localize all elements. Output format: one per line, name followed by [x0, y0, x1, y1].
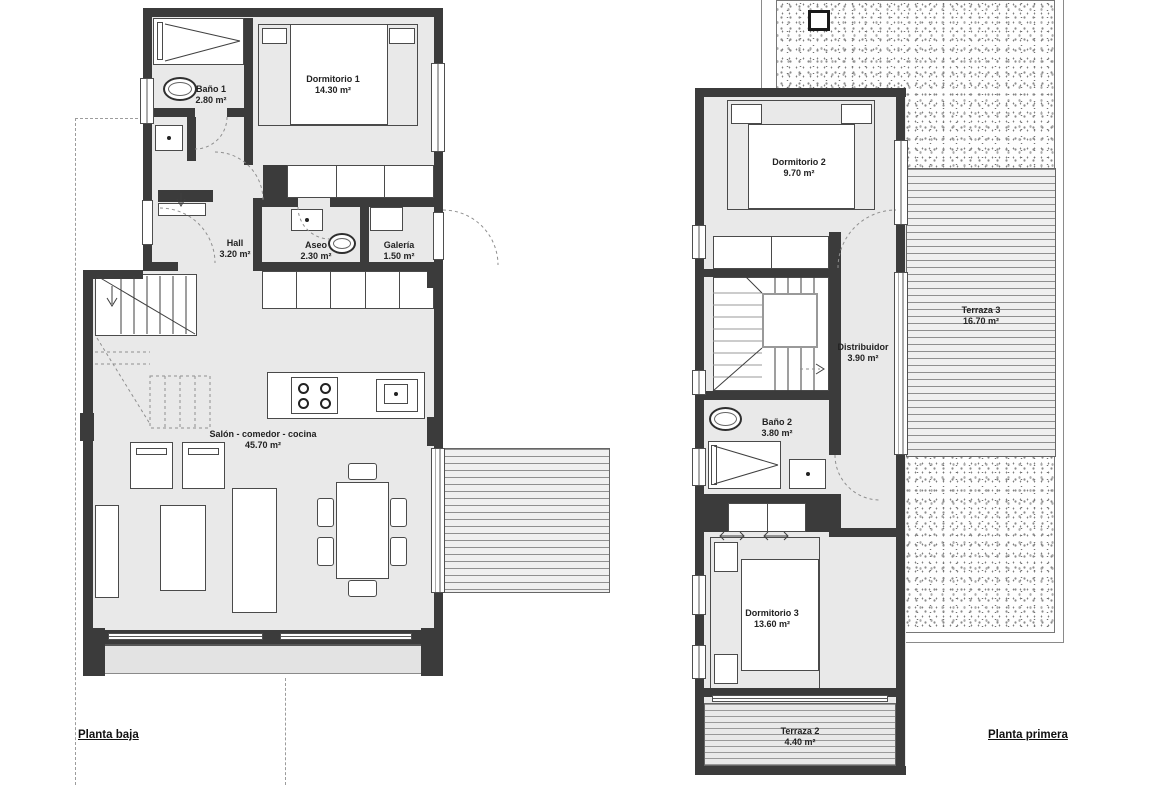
- room-label-terraza-2: Terraza 24.40 m²: [781, 726, 820, 749]
- room-label-hall: Hall3.20 m²: [219, 238, 250, 261]
- washer-symbol: [155, 125, 183, 151]
- i: [168, 82, 192, 96]
- chimney-marker: [808, 10, 830, 31]
- wall-segment: [704, 503, 728, 532]
- window: [894, 140, 908, 225]
- i: [385, 166, 433, 197]
- span: Distribuidor: [838, 342, 889, 353]
- span: 14.30 m²: [306, 85, 360, 96]
- wall-segment: [330, 198, 434, 207]
- wall-segment: [695, 615, 704, 645]
- span: 9.70 m²: [772, 168, 826, 179]
- span: Dormitorio 3: [745, 608, 799, 619]
- plan-title-ground: Planta baja: [78, 729, 139, 741]
- sliding-door: [280, 633, 412, 640]
- wall-segment: [896, 455, 905, 775]
- wall-segment: [434, 593, 443, 633]
- wall-segment: [695, 766, 906, 775]
- wall-segment: [427, 417, 443, 446]
- window: [692, 645, 706, 679]
- i: [714, 412, 737, 426]
- wall-segment: [434, 152, 443, 212]
- wall-segment: [896, 97, 905, 140]
- wall-segment: [896, 225, 905, 272]
- wall-segment: [704, 269, 841, 277]
- room-label-dormitorio-3: Dormitorio 313.60 m²: [745, 608, 799, 631]
- chair-symbol: [317, 537, 334, 566]
- wall-segment: [143, 8, 152, 78]
- span: Galería: [383, 240, 414, 251]
- dining-table: [336, 482, 389, 579]
- chair-symbol: [348, 463, 377, 480]
- gallery-door-opening: [433, 212, 444, 260]
- wall-segment: [421, 628, 443, 676]
- bed-pillow: [841, 104, 872, 124]
- burner: [320, 398, 331, 409]
- window: [431, 63, 445, 152]
- stove-symbol: [291, 377, 338, 414]
- span: Salón - comedor - cocina: [209, 429, 316, 440]
- i: [331, 272, 365, 308]
- plot-outline: [761, 0, 762, 88]
- room-label-dormitorio-2: Dormitorio 29.70 m²: [772, 157, 826, 180]
- kitchen-cabinets: [262, 271, 434, 309]
- closet-rod: [157, 22, 163, 60]
- site-boundary-line: [75, 118, 76, 785]
- window: [692, 225, 706, 259]
- wall-segment: [80, 413, 94, 441]
- window: [692, 370, 706, 395]
- wall-segment: [143, 8, 443, 17]
- entry-door-opening: [142, 200, 153, 245]
- wall-segment: [253, 198, 262, 270]
- span: Dormitorio 1: [306, 74, 360, 85]
- washbasin-symbol: [291, 209, 323, 231]
- wardrobe-symbol: [713, 236, 829, 269]
- wall-segment: [360, 207, 369, 270]
- span: 3.20 m²: [219, 249, 250, 260]
- plot-outline: [906, 642, 1064, 643]
- sofa-symbol: [95, 505, 119, 598]
- window: [140, 78, 154, 124]
- chair-symbol: [317, 498, 334, 527]
- washbasin-symbol: [789, 459, 826, 489]
- floor-plan-sheet: Baño 12.80 m² Dormitorio 114.30 m² Hall3…: [0, 0, 1170, 785]
- room-label-dormitorio-1: Dormitorio 114.30 m²: [306, 74, 360, 97]
- wall-segment: [244, 18, 253, 165]
- room-label-aseo: Aseo2.30 m²: [300, 240, 331, 263]
- span: 2.30 m²: [300, 251, 331, 262]
- burner: [320, 383, 331, 394]
- span: Aseo: [300, 240, 331, 251]
- span: 4.40 m²: [781, 737, 820, 748]
- span: 1.50 m²: [383, 251, 414, 262]
- bed-pillow: [731, 104, 762, 124]
- entry-wall-stub: [158, 190, 213, 202]
- burner: [298, 398, 309, 409]
- shower-rod: [711, 445, 717, 485]
- sliding-door: [431, 448, 445, 593]
- span: Baño 2: [761, 417, 792, 428]
- terrace-deck: [443, 448, 610, 593]
- i: [288, 166, 337, 197]
- span: Terraza 2: [781, 726, 820, 737]
- wall-segment: [253, 262, 434, 271]
- room-label-bano-2: Baño 23.80 m²: [761, 417, 792, 440]
- toilet-symbol: [328, 233, 356, 254]
- span: 16.70 m²: [962, 316, 1001, 327]
- wall-segment: [83, 628, 105, 676]
- window: [692, 575, 706, 615]
- wall-segment: [434, 8, 443, 63]
- furniture: [136, 448, 167, 455]
- sliding-door: [108, 633, 263, 640]
- span: 13.60 m²: [745, 619, 799, 630]
- wall-segment: [143, 124, 152, 200]
- room-label-bano-1: Baño 12.80 m²: [195, 84, 226, 107]
- wall-segment: [695, 97, 704, 225]
- entry-step: [158, 203, 206, 216]
- room-label-galeria: Galería1.50 m²: [383, 240, 414, 263]
- bed-pillow: [714, 654, 738, 684]
- i: [337, 166, 386, 197]
- sofa-symbol: [232, 488, 277, 613]
- span: Baño 1: [195, 84, 226, 95]
- toilet-symbol: [709, 407, 742, 431]
- span: 45.70 m²: [209, 440, 316, 451]
- site-boundary-line: [75, 118, 143, 119]
- span: 3.80 m²: [761, 428, 792, 439]
- site-boundary-line: [285, 678, 286, 785]
- span: 2.80 m²: [195, 95, 226, 106]
- shower-symbol: [708, 441, 781, 489]
- sliding-wardrobe: [728, 503, 806, 532]
- wall-segment: [695, 259, 704, 370]
- burner: [298, 383, 309, 394]
- wall-segment: [227, 108, 244, 117]
- wall-segment: [704, 494, 830, 503]
- wall-segment: [695, 395, 704, 448]
- window: [692, 448, 706, 486]
- span: Dormitorio 2: [772, 157, 826, 168]
- chair-symbol: [390, 537, 407, 566]
- span: Terraza 3: [962, 305, 1001, 316]
- wall-segment: [695, 679, 704, 775]
- wall-segment: [83, 270, 93, 642]
- wall-segment: [806, 503, 831, 532]
- bed-pillow: [389, 28, 415, 44]
- wall-segment: [829, 528, 896, 537]
- porch-strip: [95, 644, 425, 674]
- i: [333, 238, 351, 249]
- wall-segment: [704, 391, 841, 400]
- door-swing-arc: [443, 210, 498, 265]
- chair-symbol: [390, 498, 407, 527]
- i: [729, 504, 768, 531]
- room-label-salon: Salón - comedor - cocina45.70 m²: [209, 429, 316, 452]
- room-label-distribuidor: Distribuidor3.90 m²: [838, 342, 889, 365]
- wall-segment: [695, 88, 906, 97]
- span: Hall: [219, 238, 250, 249]
- sliding-door: [712, 695, 888, 702]
- chair-symbol: [348, 580, 377, 597]
- i: [366, 272, 400, 308]
- toilet-symbol: [163, 77, 197, 101]
- wall-segment: [695, 486, 704, 575]
- stair-landing: [762, 293, 818, 348]
- bed-pillow: [262, 28, 287, 44]
- sofa-symbol: [160, 505, 206, 591]
- wardrobe-symbol: [287, 165, 434, 198]
- room-label-terraza-3: Terraza 316.70 m²: [962, 305, 1001, 328]
- wall-segment: [187, 117, 196, 161]
- bed-pillow: [714, 542, 738, 572]
- i: [714, 237, 772, 268]
- appliance-symbol: [370, 207, 403, 231]
- span: 3.90 m²: [838, 353, 889, 364]
- staircase: [95, 274, 197, 336]
- i: [297, 272, 331, 308]
- i: [263, 272, 297, 308]
- sliding-door: [894, 272, 908, 455]
- plan-title-first: Planta primera: [988, 729, 1068, 741]
- wall-segment: [153, 108, 195, 117]
- i: [768, 504, 806, 531]
- plot-outline: [1063, 0, 1064, 643]
- i: [772, 237, 829, 268]
- closet-symbol: [153, 18, 244, 65]
- wall-segment: [143, 262, 178, 271]
- sink-basin: [384, 384, 408, 404]
